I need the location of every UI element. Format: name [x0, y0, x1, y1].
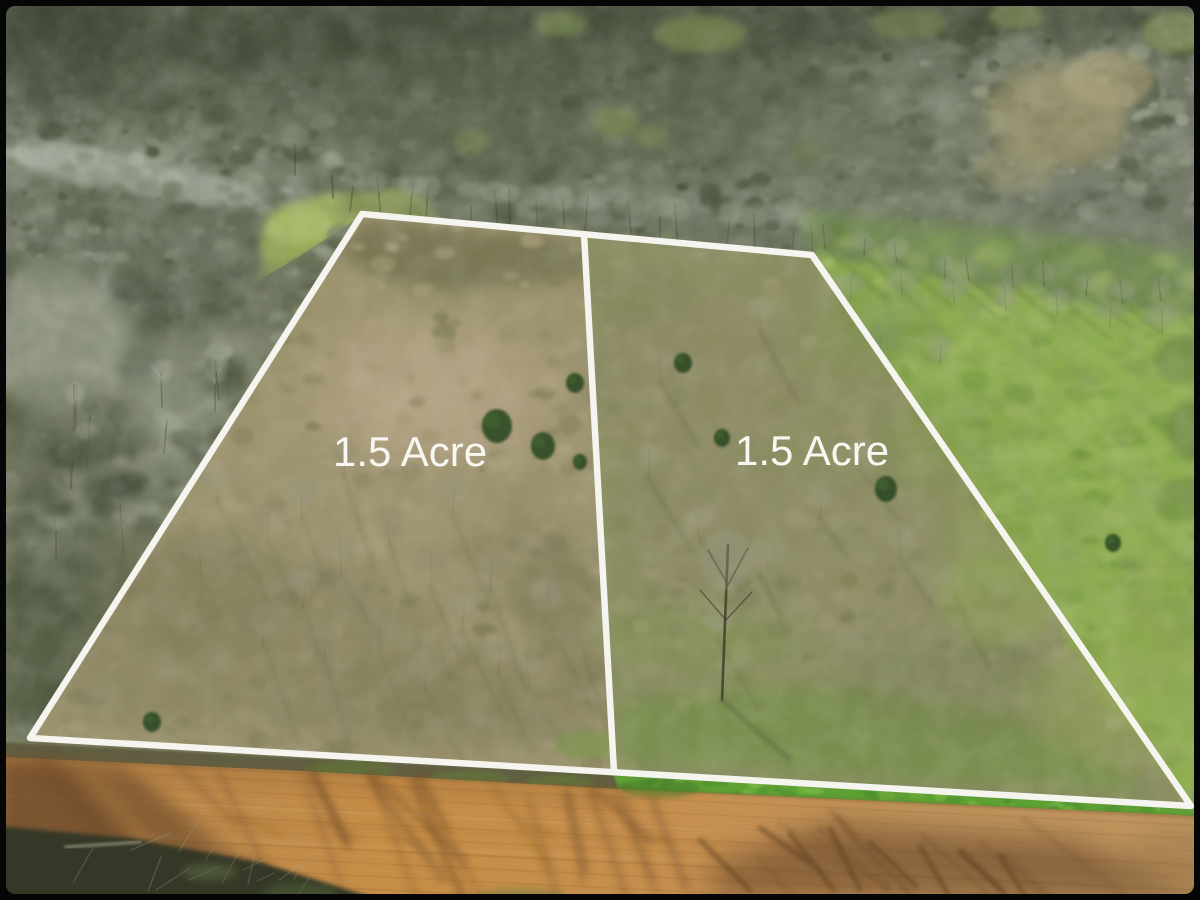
- svg-text:1.5 Acre: 1.5 Acre: [333, 428, 487, 475]
- svg-text:1.5 Acre: 1.5 Acre: [735, 427, 889, 474]
